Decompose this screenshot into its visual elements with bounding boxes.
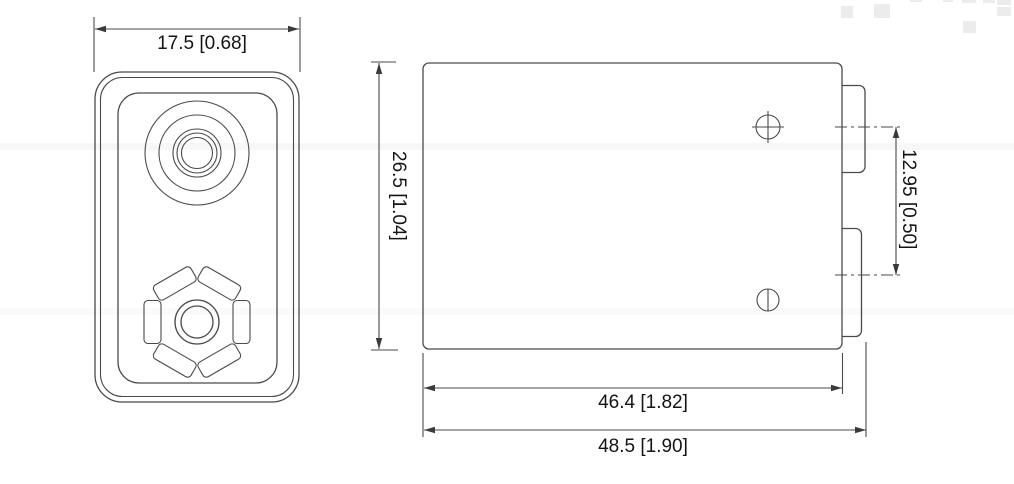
positive-terminal-top — [145, 101, 249, 205]
battery-dimension-drawing: 17.5 [0.68] 26.5 [1.04] 12.95 [0.50] 46.… — [0, 0, 1014, 484]
negative-terminal-top — [144, 265, 250, 378]
negative-symbol-icon — [757, 289, 779, 311]
battery-outer-outline — [95, 72, 299, 402]
positive-terminal-side — [843, 86, 866, 173]
terminal-petal — [196, 265, 242, 301]
dim-label-body-width: 46.4 [1.82] — [543, 393, 743, 413]
positive-terminal-ring — [177, 133, 217, 173]
terminal-petal — [196, 342, 242, 378]
dim-label-overall-width: 48.5 [1.90] — [543, 437, 743, 457]
terminal-petal — [152, 265, 198, 301]
dim-label-height: 26.5 [1.04] — [388, 151, 408, 241]
dim-label-top-width: 17.5 [0.68] — [107, 34, 297, 54]
positive-terminal-ring — [159, 115, 235, 191]
top-view — [95, 72, 299, 402]
terminal-petal — [152, 342, 198, 378]
positive-symbol-icon — [752, 111, 784, 143]
dimension-lines — [94, 17, 899, 437]
battery-second-outline — [101, 78, 294, 397]
drawing-linework — [0, 0, 1014, 484]
terminal-petal — [233, 301, 250, 344]
negative-terminal-ring — [181, 306, 213, 338]
side-view — [423, 63, 902, 349]
battery-body-side — [423, 63, 842, 349]
negative-terminal-side — [843, 229, 862, 337]
dim-label-terminal-spacing: 12.95 [0.50] — [898, 149, 918, 249]
positive-terminal-ring — [173, 129, 221, 177]
negative-terminal-petals — [144, 265, 250, 378]
battery-inner-face — [118, 93, 277, 383]
positive-terminal-ring — [182, 138, 213, 169]
terminal-petal — [144, 301, 161, 344]
positive-terminal-ring — [145, 101, 249, 205]
dim-overall-width — [424, 342, 866, 437]
